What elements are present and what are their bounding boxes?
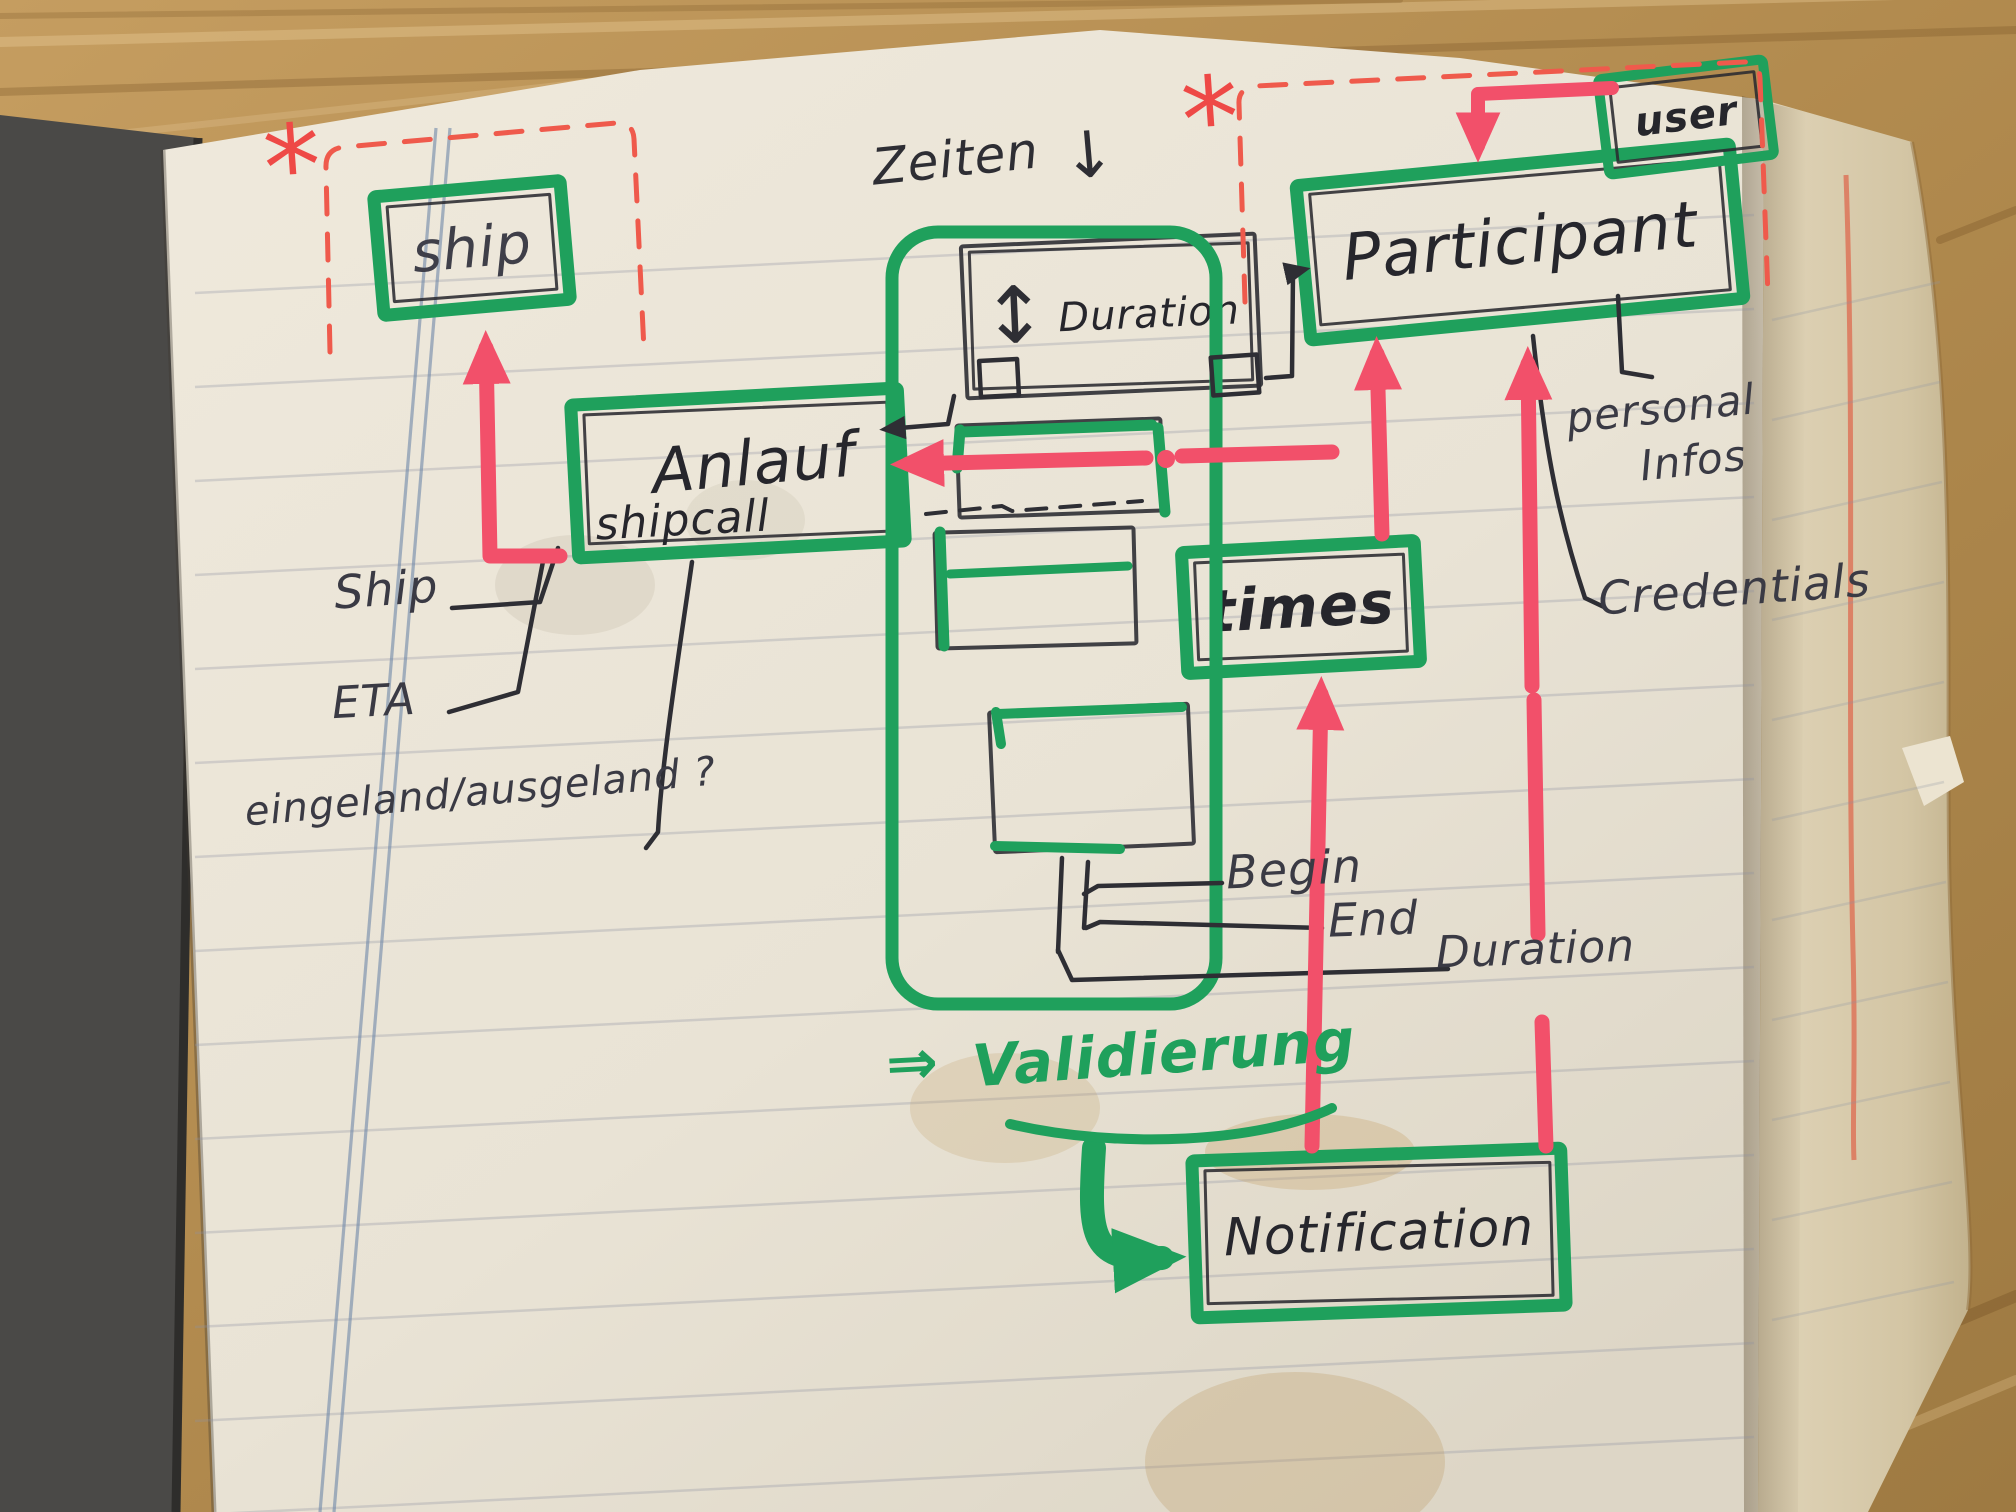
asterisk-participant: *	[1179, 70, 1244, 172]
notebook-photo: ship Anlauf shipcall ↕ Duration Particip…	[0, 0, 2016, 1512]
zeiten-label: Zeiten	[870, 125, 1041, 192]
validation-implies-icon: ⇒	[884, 1031, 940, 1096]
validation-label: Validierung	[970, 1011, 1357, 1096]
credentials-label: Credentials	[1597, 557, 1872, 622]
infos-label: Infos	[1638, 435, 1748, 488]
zeiten-down-arrow-icon: ↓	[1059, 122, 1119, 191]
asterisk-ship: *	[261, 118, 326, 220]
duration-attr-label: Duration	[1435, 925, 1636, 976]
inout-attr-label: eingeland/ausgeland ?	[243, 751, 718, 832]
eta-attr-label: ETA	[331, 678, 417, 726]
begin-attr-label: Begin	[1225, 842, 1363, 895]
ship-attr-label: Ship	[333, 562, 440, 615]
end-attr-label: End	[1327, 894, 1419, 943]
personal-label: personal	[1564, 378, 1757, 440]
